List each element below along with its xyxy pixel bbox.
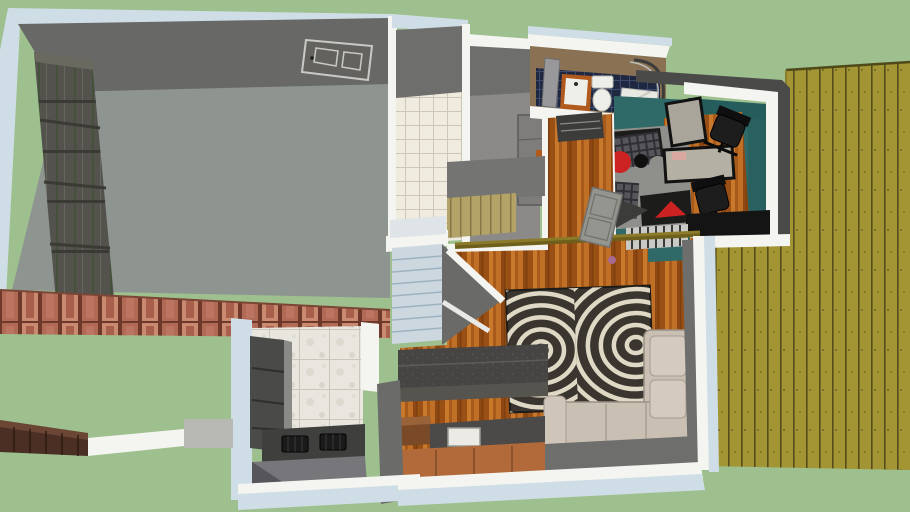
- flat-door: [302, 40, 372, 80]
- vanity: [560, 74, 592, 112]
- sink: [448, 428, 480, 446]
- garage: [0, 8, 397, 338]
- newel-cap: [608, 256, 616, 264]
- toilet: [592, 76, 613, 111]
- render-viewport: [0, 0, 910, 512]
- door-knob: [310, 56, 314, 60]
- upper-steps: [447, 193, 516, 238]
- dresser: [556, 112, 604, 142]
- media-bench: [398, 344, 548, 402]
- faucet: [574, 82, 578, 86]
- concrete-pad: [184, 419, 233, 448]
- floorplan-render: [0, 0, 910, 512]
